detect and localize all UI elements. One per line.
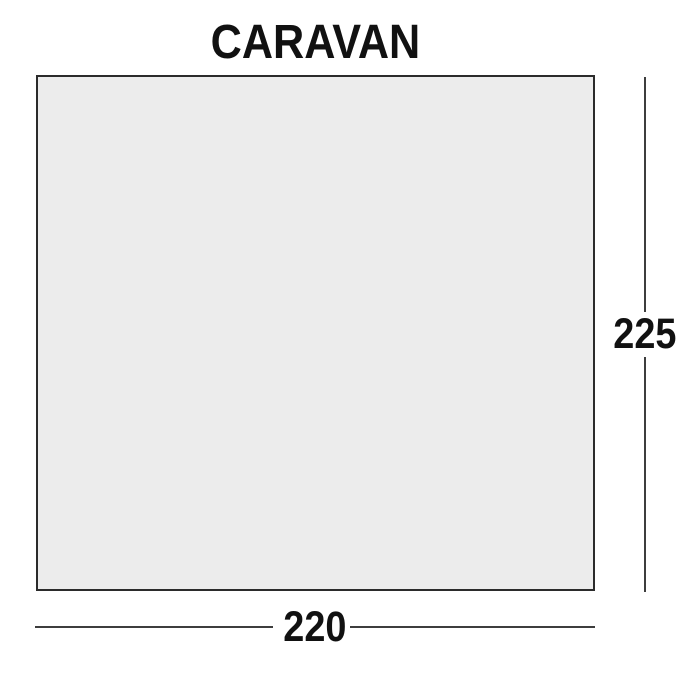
- width-dimension-line-right-segment: [350, 626, 595, 628]
- width-dimension-value: 220: [283, 605, 346, 649]
- width-dimension-label: 220: [270, 605, 360, 649]
- height-dimension-label: 225: [600, 312, 690, 356]
- height-dimension-line-lower-segment: [644, 357, 646, 592]
- dimension-diagram: CARAVAN 225 220: [0, 0, 700, 700]
- height-dimension-value: 225: [613, 312, 676, 356]
- caravan-footprint-rectangle: [36, 75, 595, 591]
- diagram-title: CARAVAN: [36, 18, 595, 68]
- width-dimension-line-left-segment: [35, 626, 273, 628]
- diagram-title-text: CARAVAN: [211, 18, 421, 68]
- height-dimension-line-upper-segment: [644, 77, 646, 312]
